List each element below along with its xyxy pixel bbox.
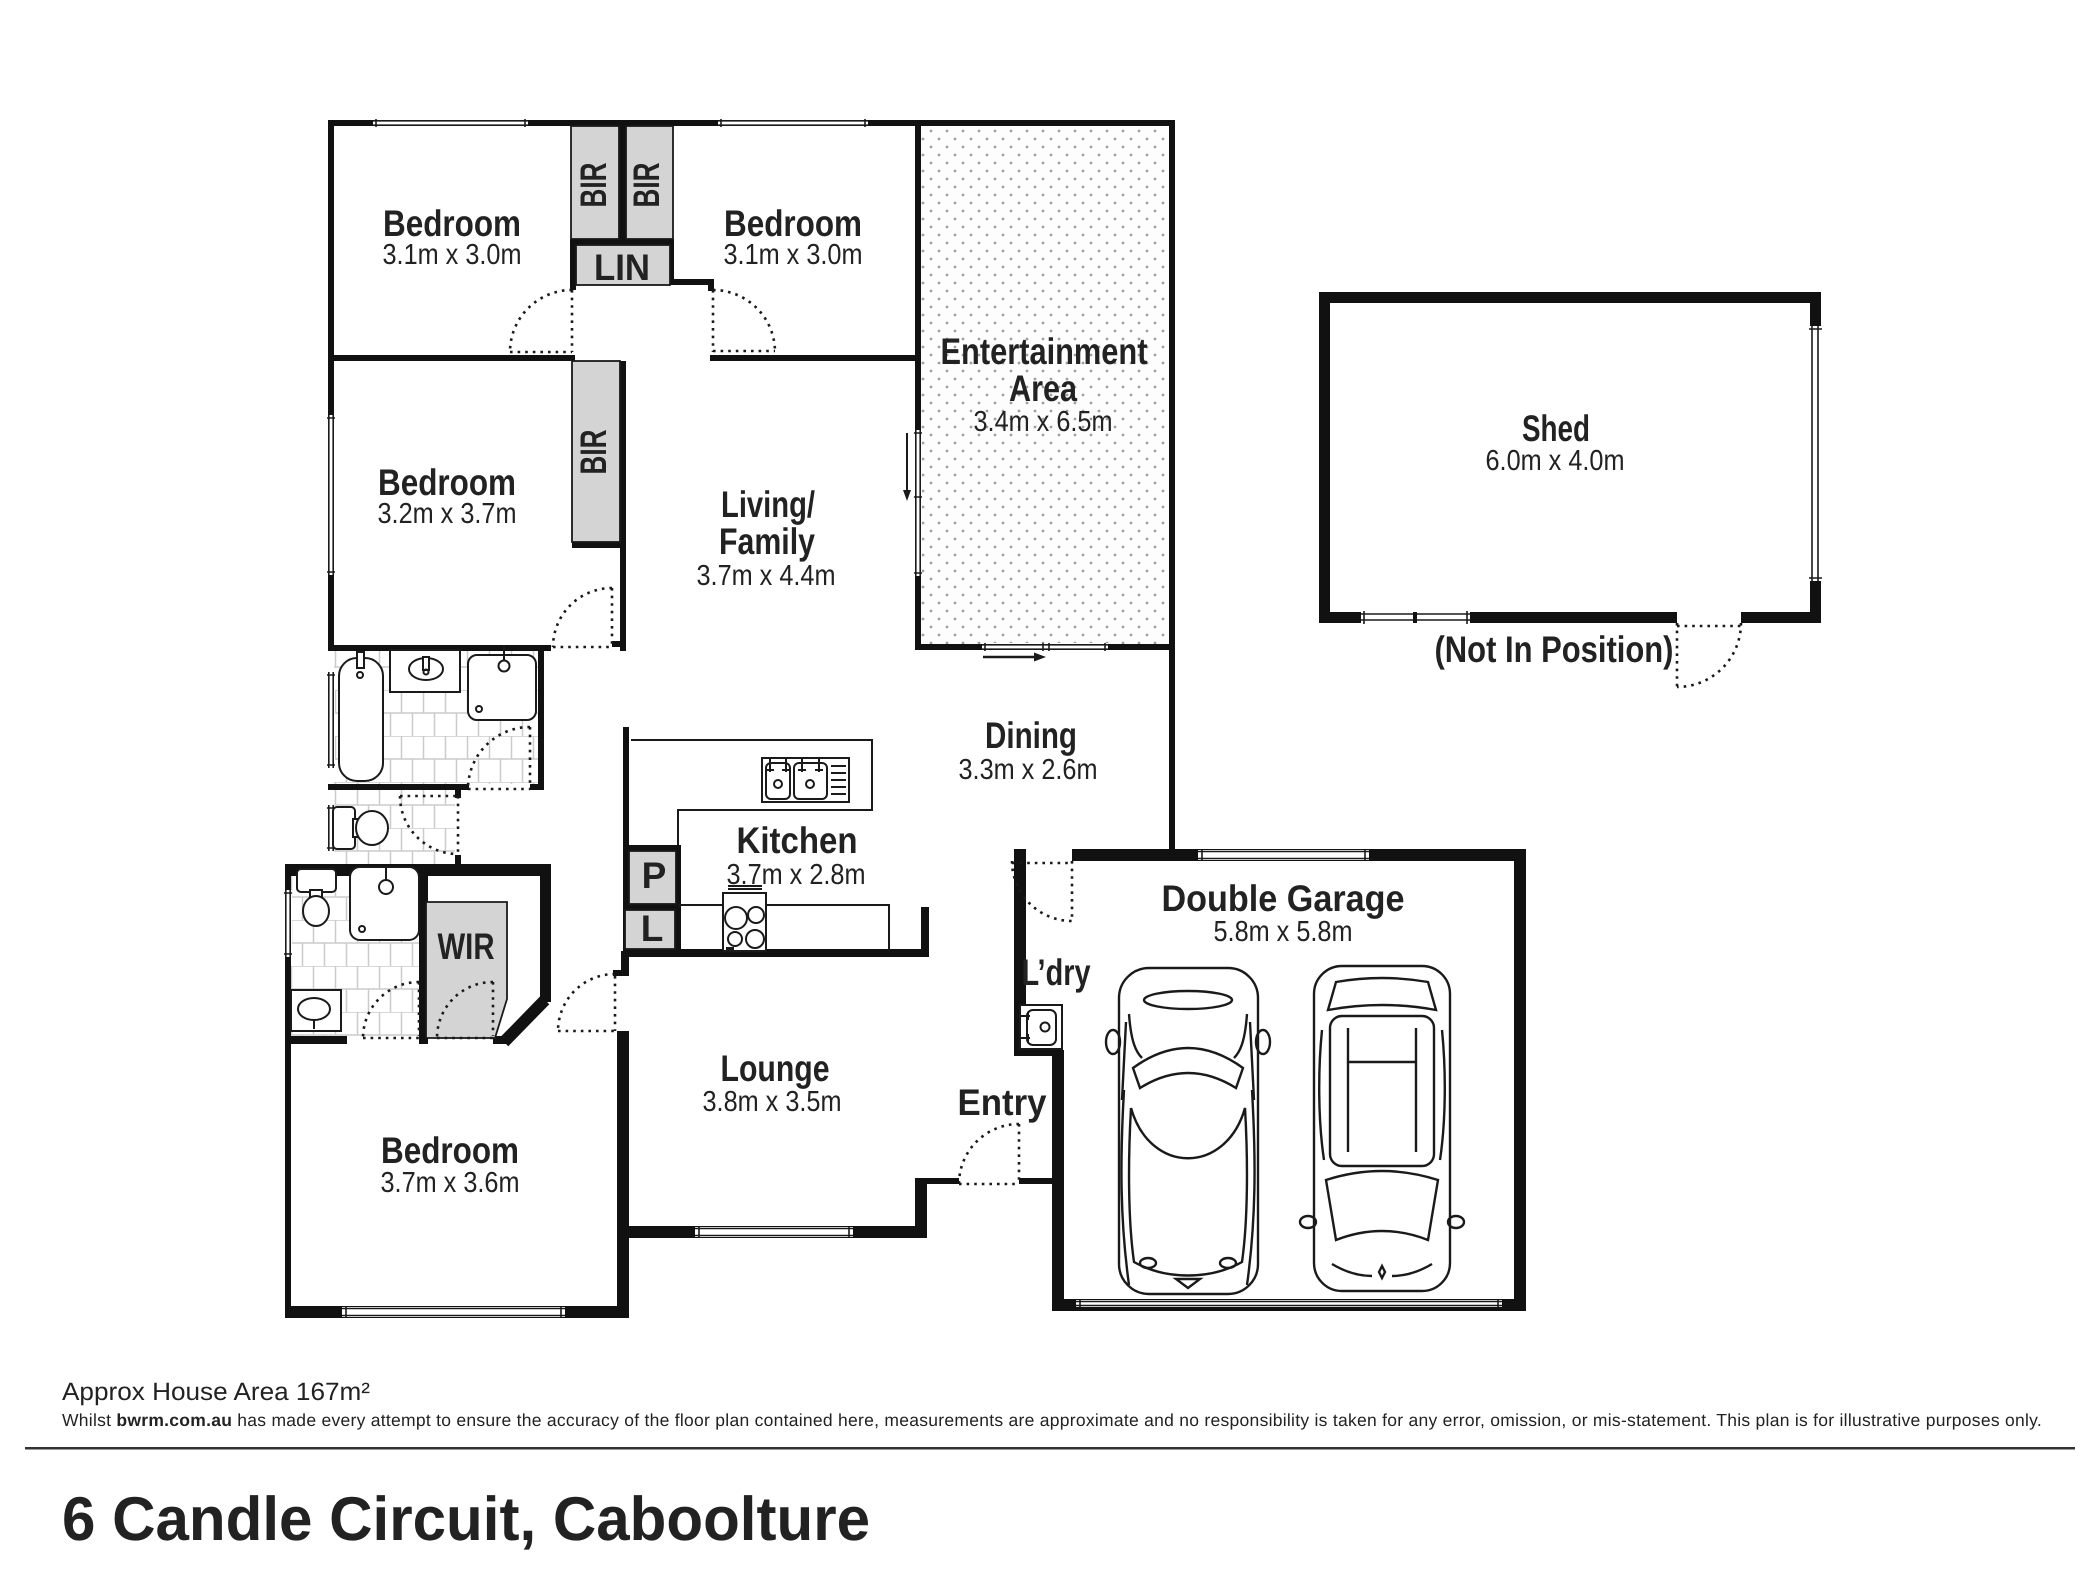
svg-text:Approx House Area 167m²: Approx House Area 167m²	[62, 1378, 370, 1406]
svg-text:Family: Family	[719, 521, 815, 562]
svg-text:3.7m x 4.4m: 3.7m x 4.4m	[697, 560, 836, 592]
svg-text:BIR: BIR	[626, 163, 667, 208]
svg-text:Bedroom: Bedroom	[378, 462, 516, 503]
svg-text:LIN: LIN	[594, 247, 650, 288]
svg-text:Bedroom: Bedroom	[383, 203, 521, 244]
svg-text:BIR: BIR	[573, 430, 614, 475]
svg-text:6.0m x 4.0m: 6.0m x 4.0m	[1486, 445, 1625, 477]
svg-text:Whilst bwrm.com.au has made ev: Whilst bwrm.com.au has made every attemp…	[62, 1410, 2042, 1430]
svg-text:Entertainment: Entertainment	[941, 331, 1148, 372]
svg-text:Living/: Living/	[721, 484, 815, 525]
svg-text:6 Candle Circuit, Caboolture: 6 Candle Circuit, Caboolture	[62, 1485, 870, 1554]
svg-text:Shed: Shed	[1522, 408, 1590, 449]
svg-text:Kitchen: Kitchen	[737, 820, 858, 861]
svg-text:L’dry: L’dry	[1022, 952, 1091, 993]
svg-text:BIR: BIR	[573, 163, 614, 208]
svg-text:(Not In Position): (Not In Position)	[1435, 629, 1674, 670]
svg-text:Entry: Entry	[958, 1082, 1047, 1123]
svg-text:P: P	[642, 855, 667, 896]
svg-text:3.3m x 2.6m: 3.3m x 2.6m	[959, 754, 1098, 786]
svg-text:Dining: Dining	[985, 715, 1077, 756]
svg-text:3.7m x 2.8m: 3.7m x 2.8m	[727, 859, 866, 891]
svg-text:3.2m x 3.7m: 3.2m x 3.7m	[378, 498, 517, 530]
svg-text:L: L	[641, 908, 664, 949]
svg-text:3.1m x 3.0m: 3.1m x 3.0m	[383, 239, 522, 271]
svg-text:Bedroom: Bedroom	[381, 1130, 519, 1171]
svg-text:3.7m x 3.6m: 3.7m x 3.6m	[381, 1167, 520, 1199]
svg-text:3.4m x 6.5m: 3.4m x 6.5m	[974, 406, 1113, 438]
svg-text:3.8m x 3.5m: 3.8m x 3.5m	[703, 1086, 842, 1118]
svg-text:Lounge: Lounge	[721, 1048, 830, 1089]
svg-text:Area: Area	[1009, 368, 1077, 409]
svg-text:5.8m x 5.8m: 5.8m x 5.8m	[1214, 916, 1353, 948]
svg-text:3.1m x 3.0m: 3.1m x 3.0m	[724, 239, 863, 271]
svg-text:WIR: WIR	[438, 926, 495, 967]
svg-text:Bedroom: Bedroom	[724, 203, 862, 244]
svg-text:Double Garage: Double Garage	[1162, 878, 1405, 919]
